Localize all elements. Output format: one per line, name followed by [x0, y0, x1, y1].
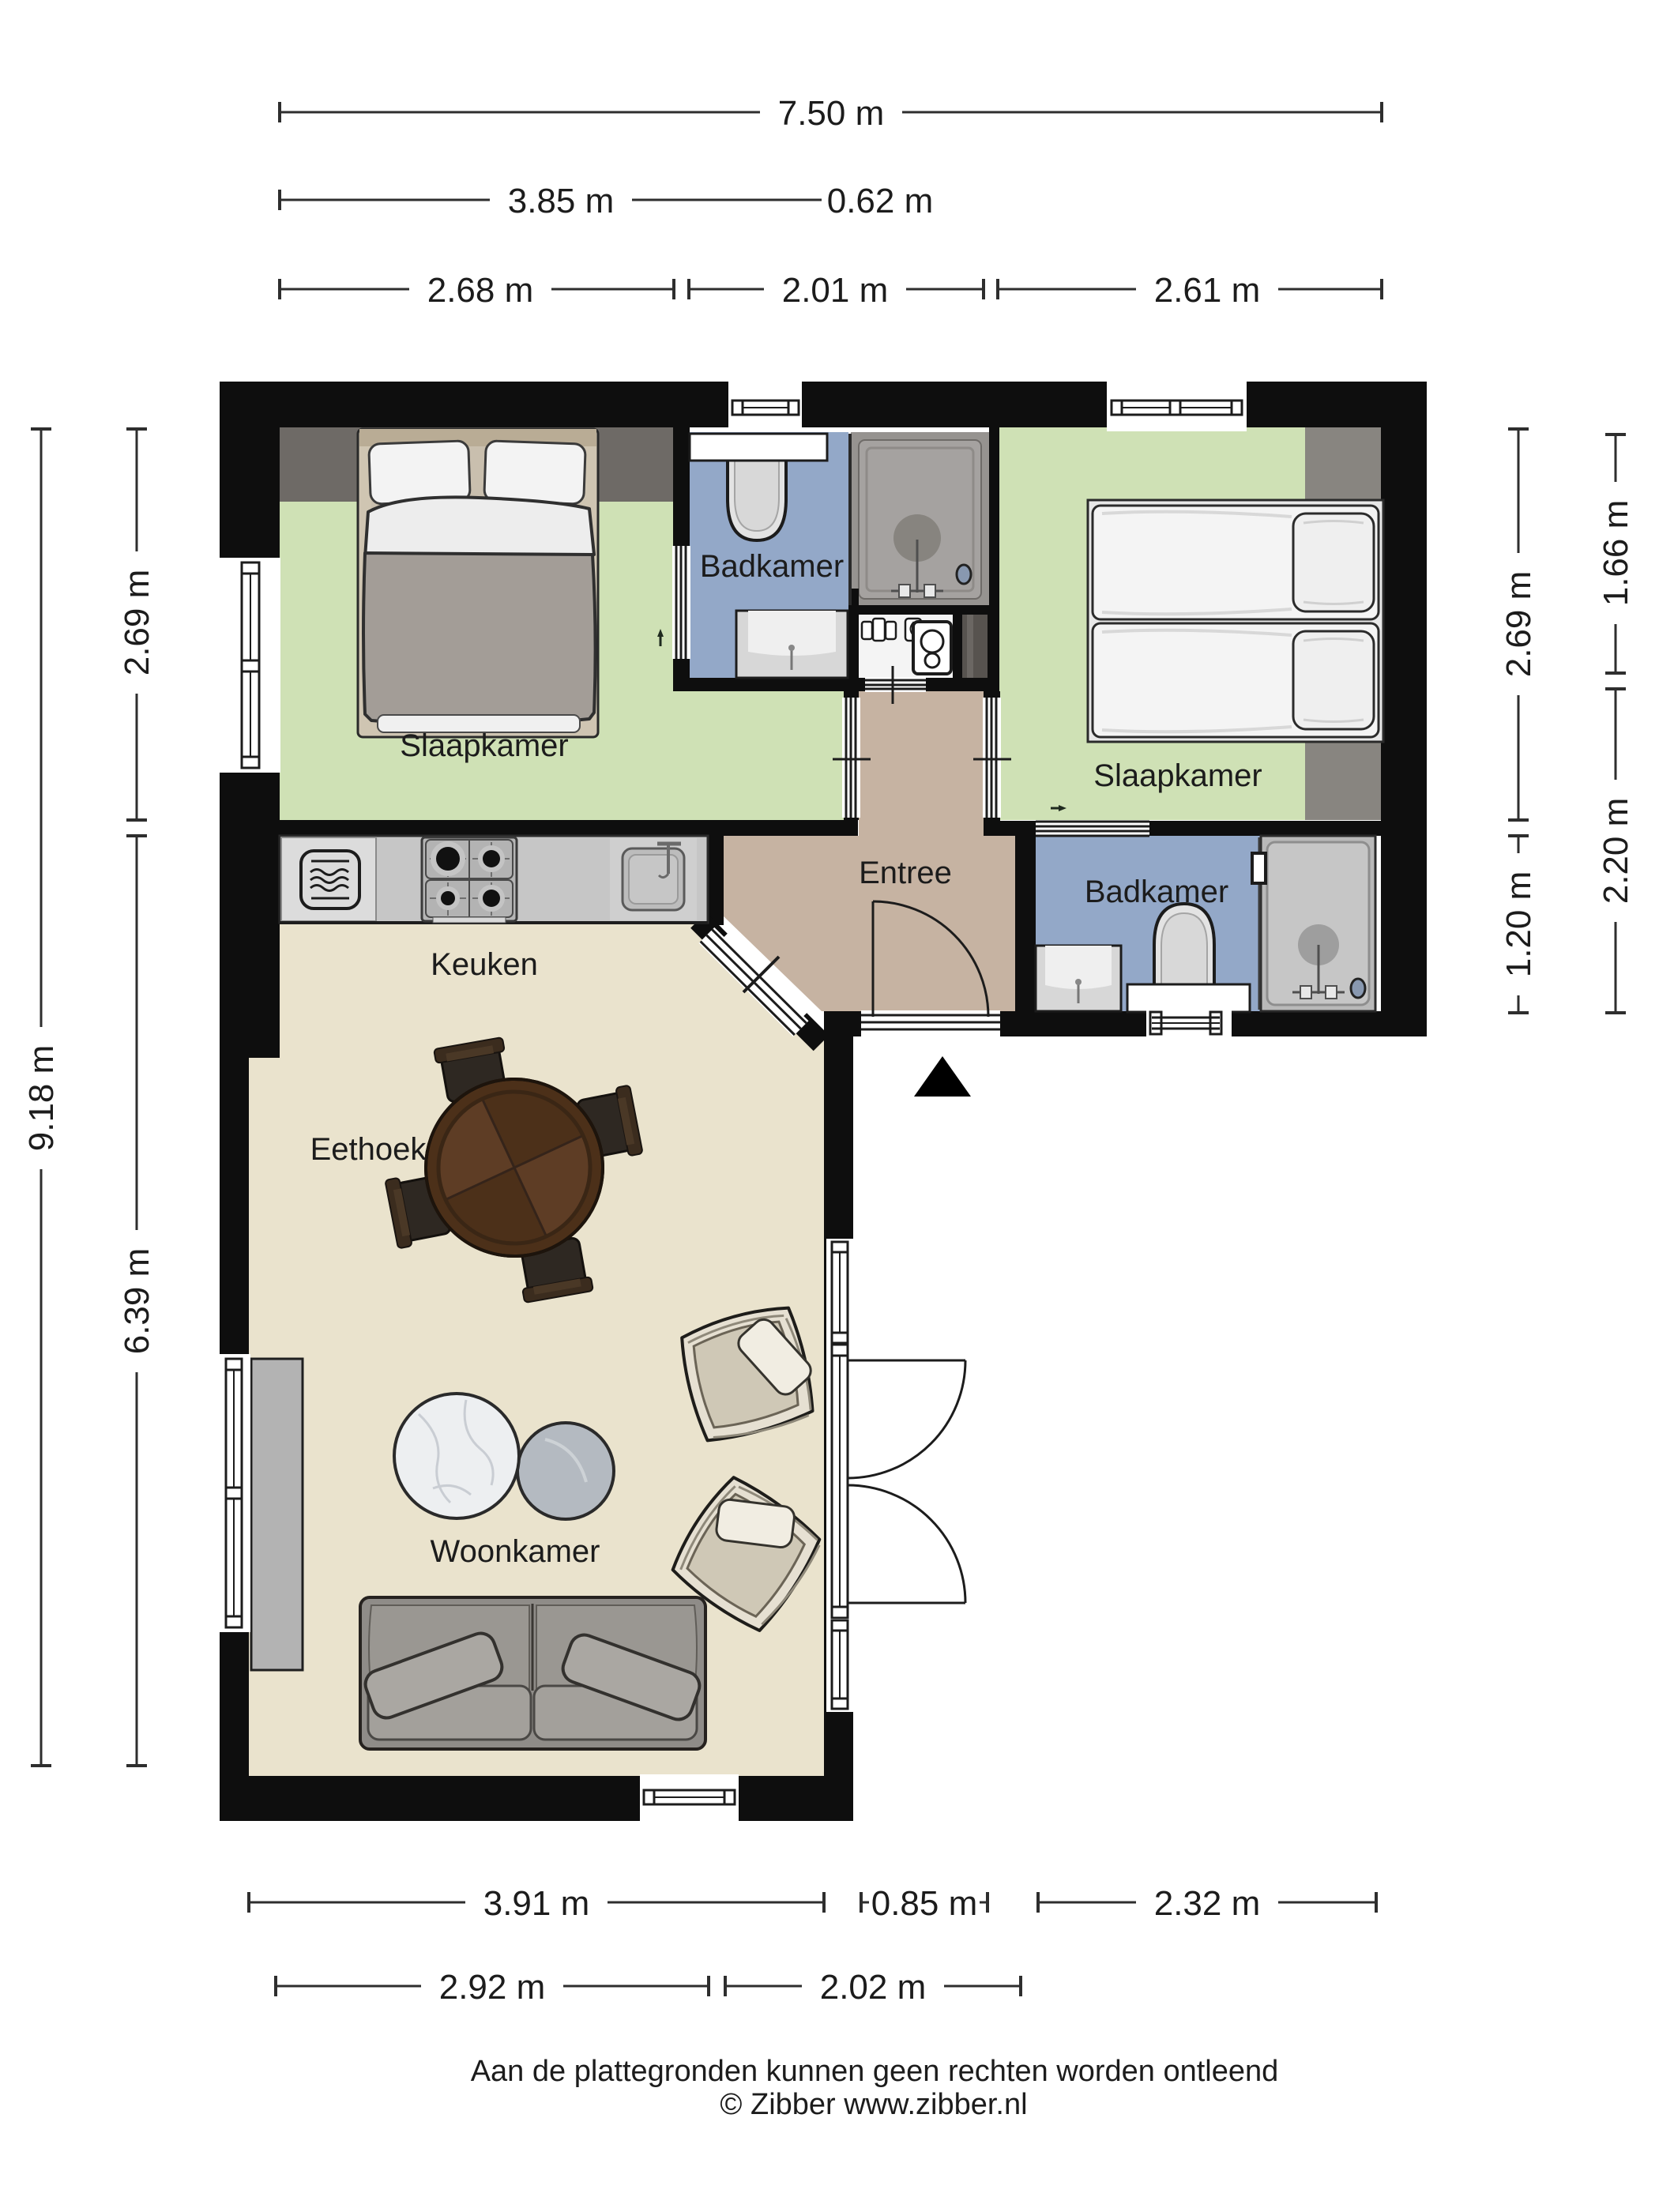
svg-text:1.20 m: 1.20 m: [1499, 871, 1538, 978]
svg-text:0.62 m: 0.62 m: [827, 182, 934, 220]
svg-text:2.20 m: 2.20 m: [1597, 798, 1635, 905]
svg-text:Keuken: Keuken: [431, 947, 538, 982]
svg-text:6.39 m: 6.39 m: [118, 1248, 156, 1355]
svg-text:1.66 m: 1.66 m: [1597, 500, 1635, 607]
svg-text:0.85 m: 0.85 m: [871, 1884, 978, 1923]
svg-text:© Zibber www.zibber.nl: © Zibber www.zibber.nl: [720, 2088, 1027, 2121]
svg-text:Aan de plattegronden kunnen ge: Aan de plattegronden kunnen geen rechten…: [471, 2055, 1279, 2088]
svg-text:3.91 m: 3.91 m: [483, 1884, 590, 1923]
svg-text:Slaapkamer: Slaapkamer: [1093, 758, 1262, 793]
svg-text:2.01 m: 2.01 m: [782, 271, 889, 310]
svg-text:Entree: Entree: [859, 856, 952, 890]
svg-text:7.50 m: 7.50 m: [778, 94, 885, 133]
svg-text:9.18 m: 9.18 m: [22, 1045, 61, 1152]
svg-text:Eethoek: Eethoek: [310, 1132, 427, 1167]
svg-text:3.85 m: 3.85 m: [508, 182, 615, 220]
svg-text:Woonkamer: Woonkamer: [431, 1534, 600, 1569]
svg-text:Slaapkamer: Slaapkamer: [400, 728, 568, 763]
svg-text:2.32 m: 2.32 m: [1154, 1884, 1261, 1923]
svg-text:2.02 m: 2.02 m: [820, 1968, 927, 2007]
svg-text:2.69 m: 2.69 m: [1499, 571, 1538, 678]
svg-text:Badkamer: Badkamer: [700, 549, 844, 584]
svg-text:2.61 m: 2.61 m: [1154, 271, 1261, 310]
svg-text:2.68 m: 2.68 m: [427, 271, 534, 310]
svg-text:2.69 m: 2.69 m: [118, 570, 156, 676]
svg-text:Badkamer: Badkamer: [1085, 875, 1228, 909]
svg-text:2.92 m: 2.92 m: [439, 1968, 546, 2007]
